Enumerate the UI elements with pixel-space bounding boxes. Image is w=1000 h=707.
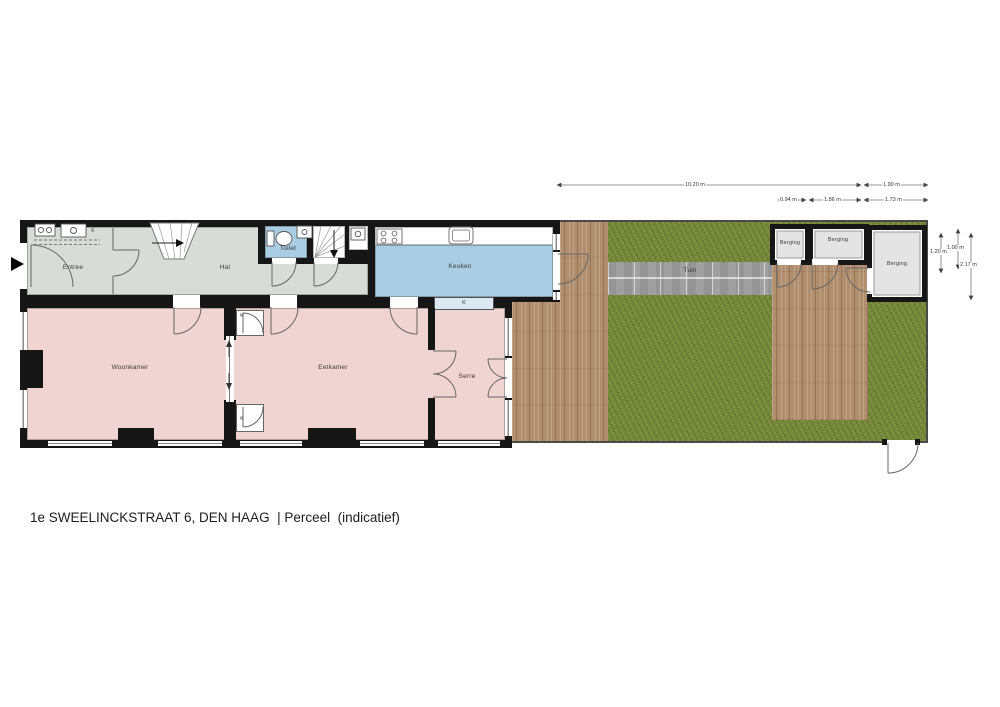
room-toilet-floor	[265, 226, 307, 258]
berging-middle-door-gap	[812, 259, 838, 265]
window-left-2	[20, 390, 27, 428]
dim-sub-width-2: 1.86 m	[823, 197, 842, 203]
bottom-wall-pier-1	[118, 428, 154, 442]
window-serre-2	[505, 400, 512, 436]
floorplan-canvas: K	[0, 0, 1000, 707]
label-berging-right: Berging	[877, 261, 917, 267]
window-bottom-3	[240, 441, 302, 446]
ensuite-slider-channel	[226, 336, 234, 402]
label-closet-top: K	[237, 313, 247, 319]
berging-middle-floor	[813, 229, 864, 260]
entree-hal-wall-upper	[112, 227, 114, 250]
window-keuken-2	[553, 292, 560, 300]
boundary-bottom	[512, 441, 928, 443]
window-left-1	[20, 312, 27, 350]
serre-wall-lower	[428, 398, 435, 440]
stairwell-floor	[313, 226, 345, 258]
label-berging-middle: Berging	[818, 237, 858, 243]
berging-left-door-gap	[777, 259, 801, 265]
label-berging-left: Berging	[770, 240, 810, 246]
dim-right-width: 1.90 m	[882, 182, 901, 188]
window-bottom-2	[158, 441, 222, 446]
room-keuken-floor	[375, 245, 553, 297]
label-entree: Entree	[50, 264, 96, 271]
dim-height-3: 2.17 m	[959, 262, 978, 268]
kitchen-cabinet: K	[434, 297, 494, 310]
window-keuken-1	[553, 234, 560, 250]
stair-door-gap	[314, 258, 338, 264]
hal-woonkamer-door-gap	[173, 295, 200, 308]
left-wall-pier	[20, 350, 43, 388]
deck-right	[772, 262, 868, 420]
ensuite-wall-bottom	[224, 400, 236, 440]
label-toilet: Toilet	[266, 245, 310, 252]
label-hal: Hal	[210, 264, 240, 271]
boundary-top	[560, 220, 928, 222]
deck-left	[560, 221, 608, 443]
keuken-eetkamer-door-gap	[390, 297, 418, 308]
label-meter-closet: K	[88, 228, 98, 234]
label-keuken: Keuken	[435, 263, 485, 270]
hal-eetkamer-door-gap	[270, 295, 297, 308]
label-eetkamer: Eetkamer	[303, 364, 363, 371]
page-title: 1e SWEELINCKSTRAAT 6, DEN HAAG | Perceel…	[30, 510, 400, 525]
bottom-wall-pier-2	[308, 428, 356, 442]
front-door-gap	[20, 243, 27, 289]
window-bottom-5	[438, 441, 500, 446]
deck-left-extension	[512, 302, 560, 443]
toilet-door-gap	[272, 258, 296, 264]
ensuite-slider-line	[229, 336, 230, 402]
gate-jamb-left	[882, 439, 887, 445]
label-serre: Serre	[445, 373, 489, 380]
dim-height-1: 1.20 m	[929, 249, 948, 255]
window-serre-1	[505, 318, 512, 356]
entree-hal-wall-lower	[112, 276, 114, 295]
window-bottom-1	[48, 441, 112, 446]
serre-deck-door-gap	[505, 358, 512, 398]
label-woonkamer: Woonkamer	[100, 364, 160, 371]
closet-room-floor	[349, 226, 368, 250]
dim-sub-width-3: 1.73 m	[884, 197, 903, 203]
gate-jamb-right	[915, 439, 920, 445]
kitchen-counter	[375, 227, 553, 245]
dim-sub-width-1: 0.94 m	[779, 197, 798, 203]
dim-garden-width: 10.20 m	[684, 182, 706, 188]
label-tuin: Tuin	[668, 267, 712, 274]
label-closet-bottom: K	[237, 416, 247, 422]
window-bottom-4	[360, 441, 424, 446]
serre-wall-upper	[428, 308, 435, 350]
kitchen-cabinet-label: K	[462, 300, 466, 306]
dim-height-2: 1.00 m	[946, 245, 965, 251]
berging-right-door-gap	[867, 268, 873, 294]
gate-gap	[886, 440, 916, 444]
keuken-deck-door-gap	[553, 252, 560, 290]
